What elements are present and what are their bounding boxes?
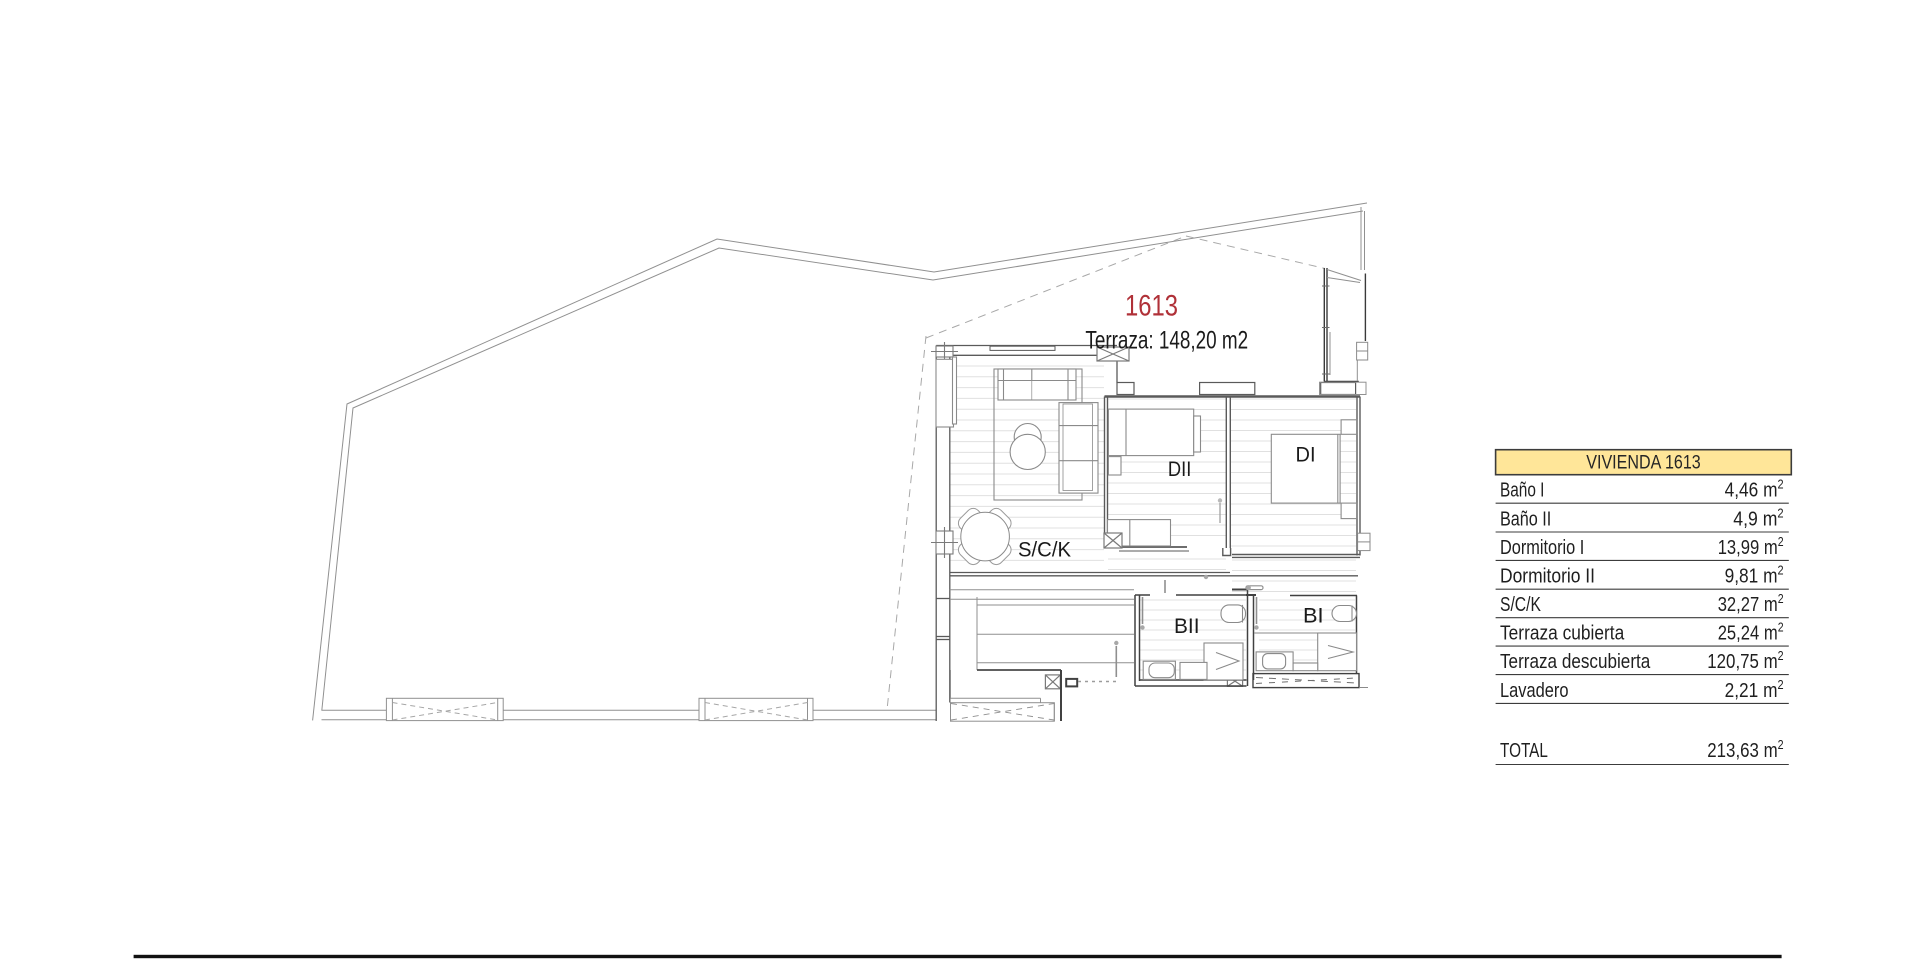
svg-text:Baño II: Baño II [1500,508,1551,531]
svg-text:4,46 m2: 4,46 m2 [1725,477,1784,502]
svg-text:BI: BI [1303,604,1324,628]
svg-text:120,75 m2: 120,75 m2 [1707,648,1783,673]
svg-text:Terraza: 148,20 m2: Terraza: 148,20 m2 [1085,326,1248,354]
svg-text:25,24 m2: 25,24 m2 [1718,620,1784,645]
svg-text:DI: DI [1296,442,1316,466]
svg-text:VIVIENDA 1613: VIVIENDA 1613 [1586,453,1701,474]
svg-text:13,99 m2: 13,99 m2 [1718,534,1784,559]
svg-text:BII: BII [1174,614,1200,638]
svg-text:213,63 m2: 213,63 m2 [1707,737,1783,762]
svg-text:S/C/K: S/C/K [1018,538,1072,562]
svg-text:2,21 m2: 2,21 m2 [1725,677,1784,702]
svg-text:Lavadero: Lavadero [1500,679,1569,702]
svg-text:Terraza descubierta: Terraza descubierta [1500,650,1651,673]
svg-text:Dormitorio I: Dormitorio I [1500,536,1584,559]
svg-text:32,27 m2: 32,27 m2 [1718,591,1784,616]
svg-text:Dormitorio II: Dormitorio II [1500,565,1595,588]
svg-text:4,9 m2: 4,9 m2 [1733,506,1783,531]
svg-text:DII: DII [1168,457,1191,481]
svg-text:Terraza cubierta: Terraza cubierta [1500,622,1625,645]
svg-text:1613: 1613 [1125,290,1178,323]
svg-text:Baño I: Baño I [1500,479,1544,502]
svg-text:TOTAL: TOTAL [1500,739,1548,762]
svg-text:9,81 m2: 9,81 m2 [1725,563,1784,588]
svg-text:S/C/K: S/C/K [1500,593,1541,616]
